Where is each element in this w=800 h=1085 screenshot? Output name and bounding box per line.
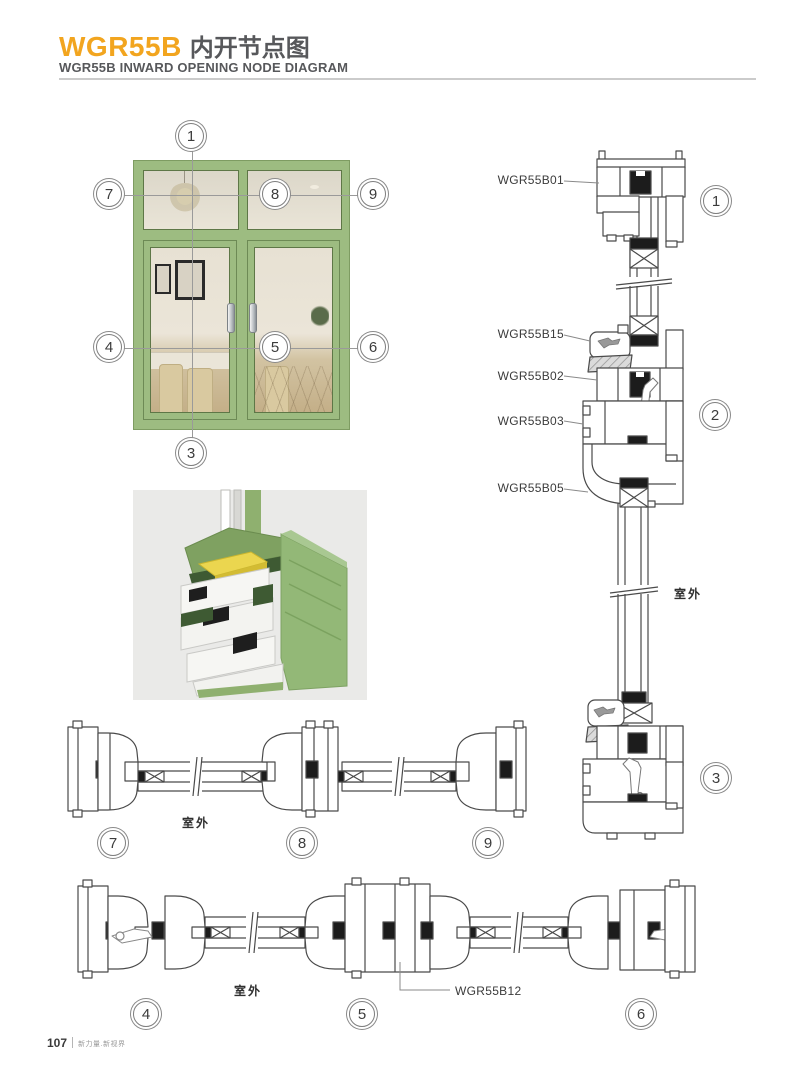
- callout-node-9: 9: [475, 830, 501, 856]
- callout-node-1: 1: [703, 188, 729, 214]
- scene-decoration: [168, 183, 202, 213]
- window-illustration: [133, 160, 350, 430]
- callout-node-2: 2: [702, 402, 728, 428]
- window-handle-right: [249, 303, 257, 333]
- scene-decoration: [187, 368, 213, 413]
- scene-decoration: [255, 366, 332, 412]
- callout-node-6: 6: [628, 1001, 654, 1027]
- callout-node-4: 4: [133, 1001, 159, 1027]
- footer-tagline: 新力量.新视界: [78, 1039, 125, 1049]
- callout-7: 7: [96, 181, 122, 207]
- callout-line-mid: [124, 348, 362, 349]
- glass-pane: [254, 247, 333, 413]
- scene-decoration: [159, 364, 183, 413]
- title-chinese: 内开节点图: [190, 35, 310, 62]
- outdoor-label-vertical: 室外: [674, 585, 702, 602]
- footer-divider: [72, 1037, 73, 1048]
- product-code: WGR55B: [59, 31, 182, 62]
- part-label-wgr55b02: WGR55B02: [480, 369, 564, 383]
- outdoor-label-row1: 室外: [182, 814, 210, 831]
- glass-pane: [247, 170, 342, 230]
- glass-pane: [150, 247, 230, 413]
- header-divider: [59, 78, 756, 80]
- page-footer: 107 新力量.新视界: [47, 1036, 125, 1050]
- scene-decoration: [175, 260, 205, 300]
- part-label-wgr55b12: WGR55B12: [455, 984, 521, 998]
- scene-decoration: [155, 264, 171, 294]
- casement-sash-left: [143, 240, 237, 420]
- scene-decoration: [184, 171, 185, 183]
- horizontal-node-section-bottom: [60, 875, 710, 995]
- page-number: 107: [47, 1036, 67, 1050]
- part-label-wgr55b15: WGR55B15: [480, 327, 564, 341]
- callout-3: 3: [178, 440, 204, 466]
- part-label-wgr55b03: WGR55B03: [480, 414, 564, 428]
- scene-decoration: [311, 304, 329, 328]
- callout-node-7: 7: [100, 830, 126, 856]
- callout-node-8: 8: [289, 830, 315, 856]
- callout-line-top: [124, 195, 362, 196]
- part-label-wgr55b01: WGR55B01: [480, 173, 564, 187]
- callout-node-5: 5: [349, 1001, 375, 1027]
- scene-decoration: [310, 185, 319, 189]
- callout-5: 5: [262, 334, 288, 360]
- page-title: WGR55B内开节点图: [59, 28, 310, 63]
- glass-pane: [143, 170, 239, 230]
- page-subtitle: WGR55B INWARD OPENING NODE DIAGRAM: [59, 60, 348, 75]
- callout-4: 4: [96, 334, 122, 360]
- callout-6: 6: [360, 334, 386, 360]
- outdoor-label-row2: 室外: [234, 982, 262, 999]
- callout-8: 8: [262, 181, 288, 207]
- window-handle-left: [227, 303, 235, 333]
- callout-9: 9: [360, 181, 386, 207]
- part-label-wgr55b05: WGR55B05: [480, 481, 564, 495]
- casement-sash-right: [247, 240, 340, 420]
- catalog-page: WGR55B内开节点图 WGR55B INWARD OPENING NODE D…: [0, 0, 800, 1085]
- callout-1: 1: [178, 123, 204, 149]
- callout-node-3: 3: [703, 765, 729, 791]
- profile-3d-render: [133, 490, 367, 700]
